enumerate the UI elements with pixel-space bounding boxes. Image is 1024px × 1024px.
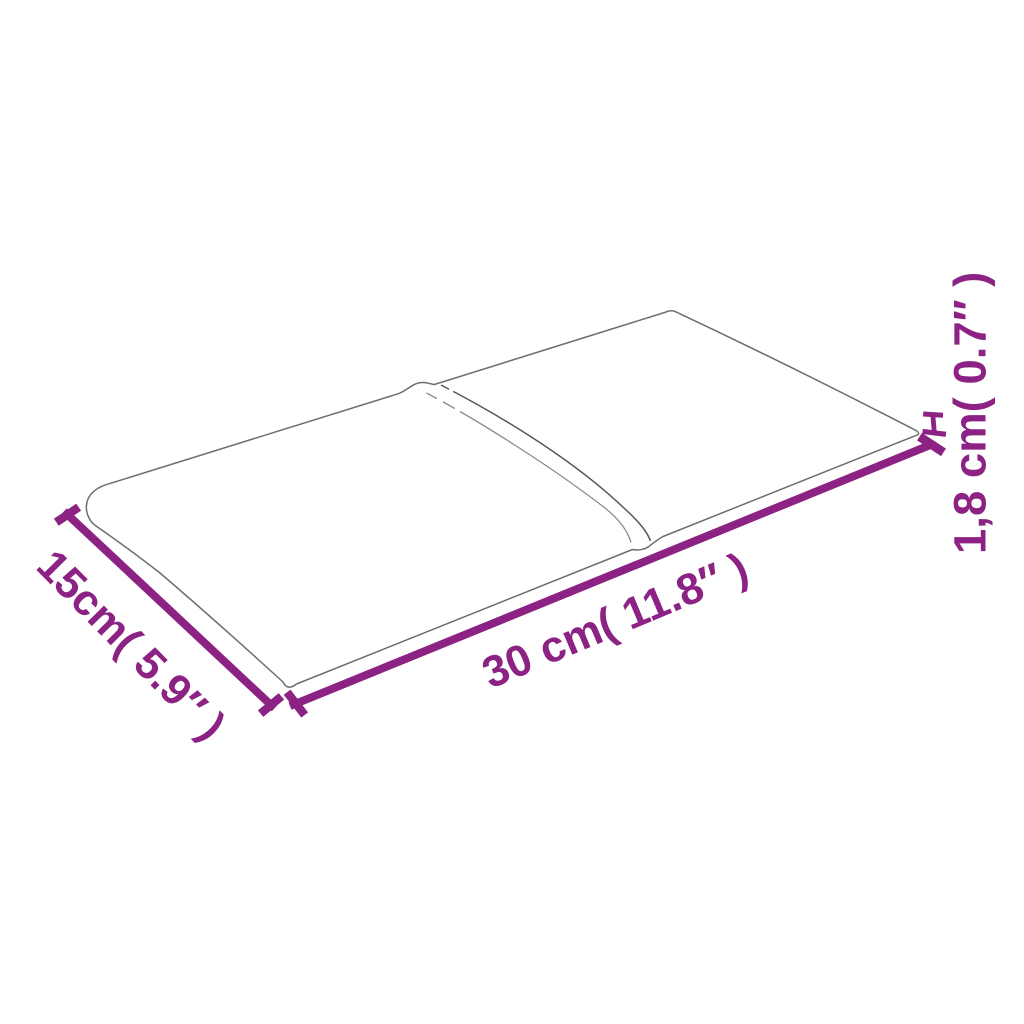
svg-text:1,8 cm( 0.7″ ): 1,8 cm( 0.7″ ) xyxy=(945,272,996,554)
